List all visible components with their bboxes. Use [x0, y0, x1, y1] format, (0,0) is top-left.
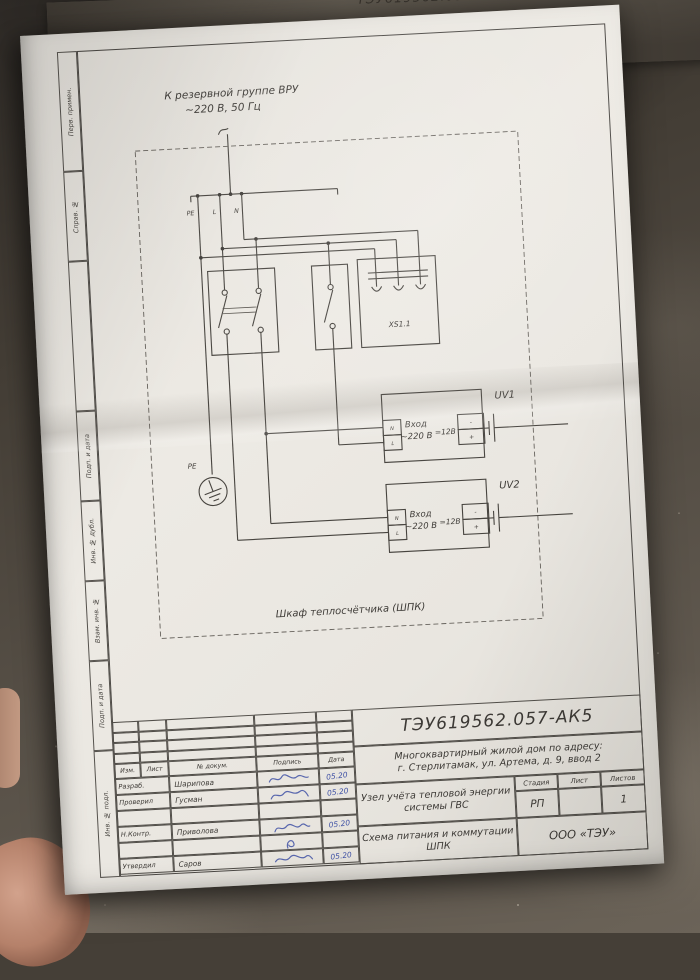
psu2-name: UV2	[499, 479, 520, 491]
schematic: К резервной группе ВРУ ~220 В, 50 Гц Шка…	[78, 24, 640, 721]
psu1-term-n: N	[390, 426, 394, 432]
socket-xs1: XS1.1	[357, 256, 439, 348]
row-date: 05.20	[321, 815, 358, 833]
row-name: Саров	[173, 852, 262, 873]
psu2-term-n: N	[395, 516, 399, 522]
feeder-label-line1: К резервной группе ВРУ	[164, 83, 299, 102]
breaker-1pole	[311, 264, 351, 350]
breaker-2pole	[208, 268, 279, 355]
psu2-output-label: =12В	[439, 517, 460, 527]
psu2-input-line2: ~220 В	[405, 521, 438, 533]
company-name: ООО «ТЭУ»	[517, 811, 649, 856]
psu2-minus: -	[474, 509, 477, 516]
terminal-n-label: N	[234, 208, 239, 215]
stage-value: РП	[515, 789, 559, 818]
ground-label: PE	[188, 462, 198, 470]
psu1-term-l: L	[391, 441, 394, 447]
side-label: Подп. и дата	[83, 434, 93, 479]
row-date: 05.20	[320, 783, 357, 801]
signature-table: Изм. Лист № докум. Подпись Дата Разраб. …	[112, 710, 360, 877]
stage-grid: Стадия Лист Листов РП 1	[514, 769, 646, 818]
side-label: Справ. №	[71, 200, 81, 233]
cabinet-label: Шкаф теплосчётчика (ШПК)	[275, 602, 425, 621]
title-block-right: ТЭУ619562.057-АК5 Многоквартирный жилой …	[352, 694, 649, 864]
input-bus: PE L N	[186, 187, 339, 218]
psu2-term-l: L	[396, 531, 399, 537]
side-label: Подп. и дата	[96, 683, 106, 728]
line-break-symbol	[218, 128, 228, 135]
col-izm: Изм.	[114, 763, 141, 779]
side-label: Взам. инв. №	[92, 598, 102, 644]
psu2-plus: +	[474, 524, 479, 531]
sheet-name: Схема питания и коммутации ШПК	[358, 818, 519, 864]
cabinet-boundary	[135, 131, 543, 638]
terminal-l-label: L	[213, 209, 217, 216]
row-date	[322, 831, 359, 849]
title-block: Изм. Лист № докум. Подпись Дата Разраб. …	[112, 694, 648, 876]
row-signature	[261, 849, 324, 868]
feeder: К резервной группе ВРУ ~220 В, 50 Гц	[164, 83, 304, 197]
psu1-name: UV1	[494, 390, 515, 402]
side-label: Инв. № подл.	[102, 791, 112, 837]
finger-edge	[0, 688, 20, 788]
drawing-sheet: Перв. примен. Справ. № Подп. и дата Инв.…	[20, 5, 664, 895]
row-date: 05.20	[319, 767, 356, 785]
sheets-value: 1	[601, 784, 646, 813]
row-date: 05.20	[323, 847, 360, 865]
side-label: Инв. № дубл.	[87, 518, 97, 564]
psu1-input-line2: ~220 В	[400, 431, 433, 443]
psu2-input-line1: Вход	[409, 509, 432, 520]
side-label: Перв. примен.	[65, 87, 76, 136]
psu-uv1: UV1 N L Вход ~220 В =12В - +	[381, 385, 569, 463]
pe-ground-symbol: PE	[188, 461, 228, 507]
sheet-value	[558, 787, 602, 816]
col-list: Лист	[140, 762, 169, 778]
terminal-pe-label: PE	[186, 210, 194, 217]
wiring-psu	[227, 326, 389, 541]
psu1-plus: +	[469, 434, 474, 441]
psu1-output-label: =12В	[435, 427, 456, 437]
psu-uv2: UV2 N L Вход ~220 В =12В - +	[386, 475, 574, 553]
psu1-minus: -	[470, 419, 473, 426]
socket-label: XS1.1	[387, 319, 410, 329]
feeder-label-line2: ~220 В, 50 Гц	[185, 101, 261, 117]
psu1-input-line1: Вход	[405, 419, 428, 430]
row-role: Утвердил	[119, 856, 174, 875]
row-date	[320, 799, 357, 817]
